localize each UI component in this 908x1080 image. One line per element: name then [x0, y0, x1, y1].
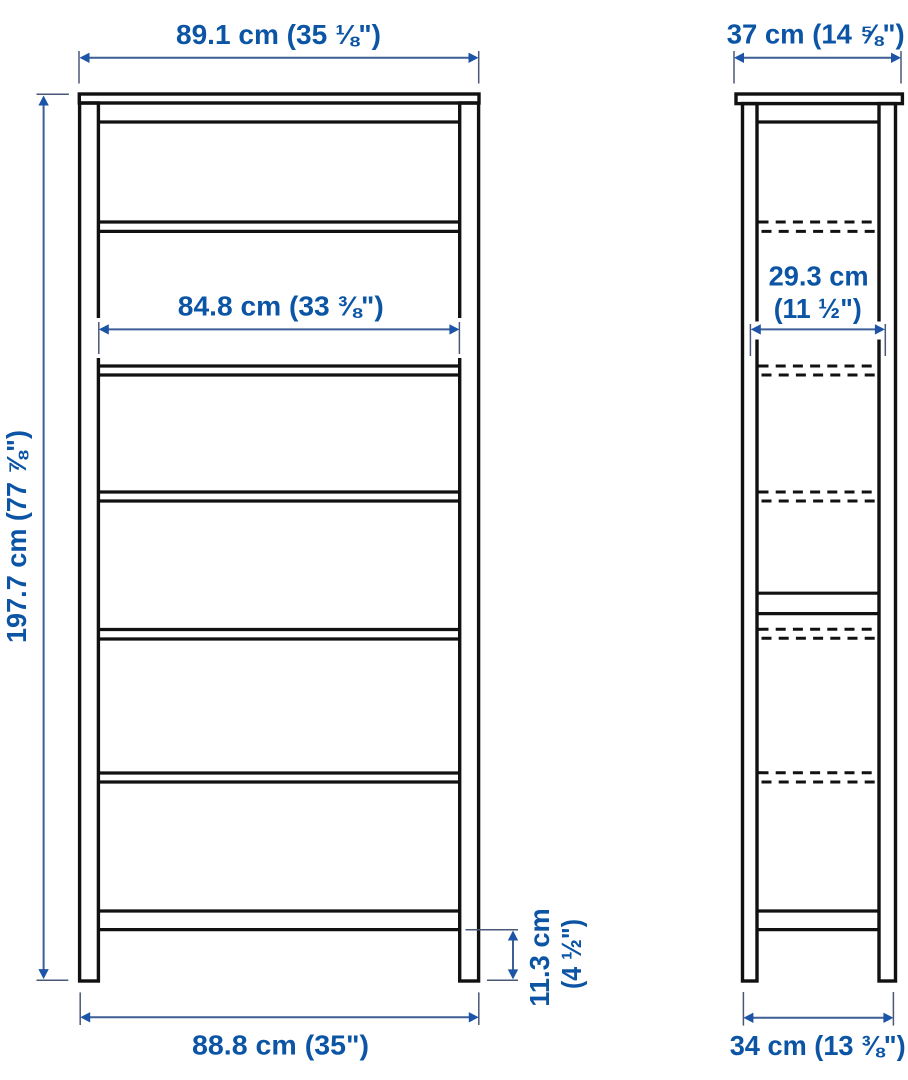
svg-text:37 cm (14 ⅝"): 37 cm (14 ⅝")	[727, 19, 905, 50]
svg-text:29.3 cm: 29.3 cm	[769, 260, 869, 291]
svg-text:34 cm (13 ⅜"): 34 cm (13 ⅜")	[730, 1030, 906, 1061]
svg-text:(11 ½"): (11 ½")	[774, 293, 862, 324]
svg-text:89.1 cm (35 ⅛"): 89.1 cm (35 ⅛")	[176, 19, 381, 50]
svg-text:84.8 cm (33 ⅜"): 84.8 cm (33 ⅜")	[178, 291, 384, 322]
svg-text:11.3 cm: 11.3 cm	[524, 908, 555, 1007]
svg-text:197.7 cm (77 ⅞"): 197.7 cm (77 ⅞")	[1, 430, 32, 643]
svg-text:(4 ½"): (4 ½")	[556, 919, 587, 989]
svg-text:88.8 cm (35"): 88.8 cm (35")	[192, 1029, 369, 1060]
